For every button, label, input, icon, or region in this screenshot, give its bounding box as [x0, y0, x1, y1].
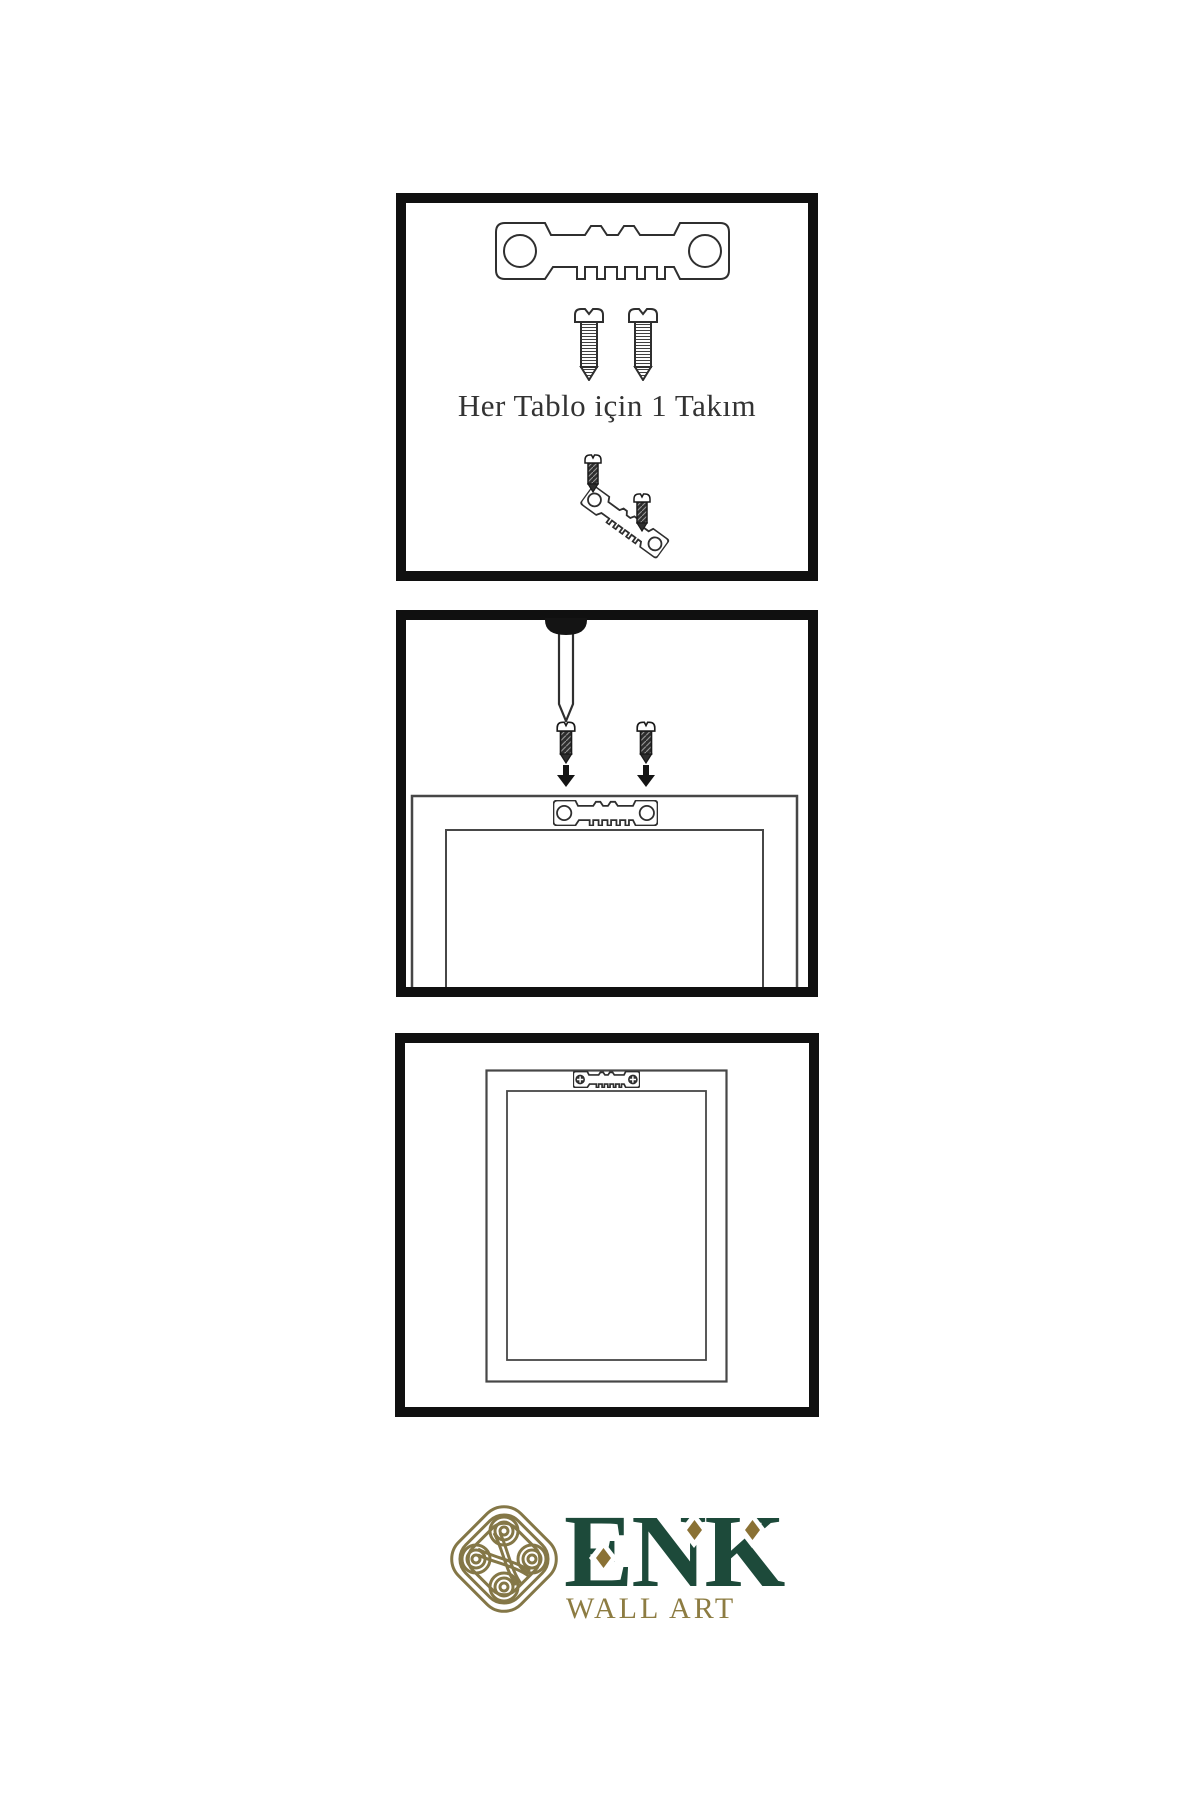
mounted-frame — [485, 1069, 728, 1383]
instruction-sheet: Her Tablo için 1 Takım — [0, 0, 1200, 1800]
mini-screw-icon — [583, 452, 603, 493]
screw-icon — [572, 305, 606, 381]
brand-subtitle: WALL ART — [566, 1594, 736, 1624]
sawtooth-hanger-icon — [495, 222, 730, 280]
mini-screw-icon — [555, 719, 577, 764]
screw-icon — [626, 305, 660, 381]
step-1-caption: Her Tablo için 1 Takım — [396, 388, 818, 424]
knot-logo-icon — [438, 1493, 570, 1625]
mini-screw-icon — [632, 491, 652, 532]
arrow-down-icon — [557, 765, 575, 787]
mini-screw-icon — [635, 719, 657, 764]
sawtooth-hanger-icon — [553, 800, 658, 826]
wall-nail-icon — [543, 618, 589, 722]
sawtooth-hanger-screwed-icon — [573, 1071, 640, 1088]
arrow-down-icon — [637, 765, 655, 787]
